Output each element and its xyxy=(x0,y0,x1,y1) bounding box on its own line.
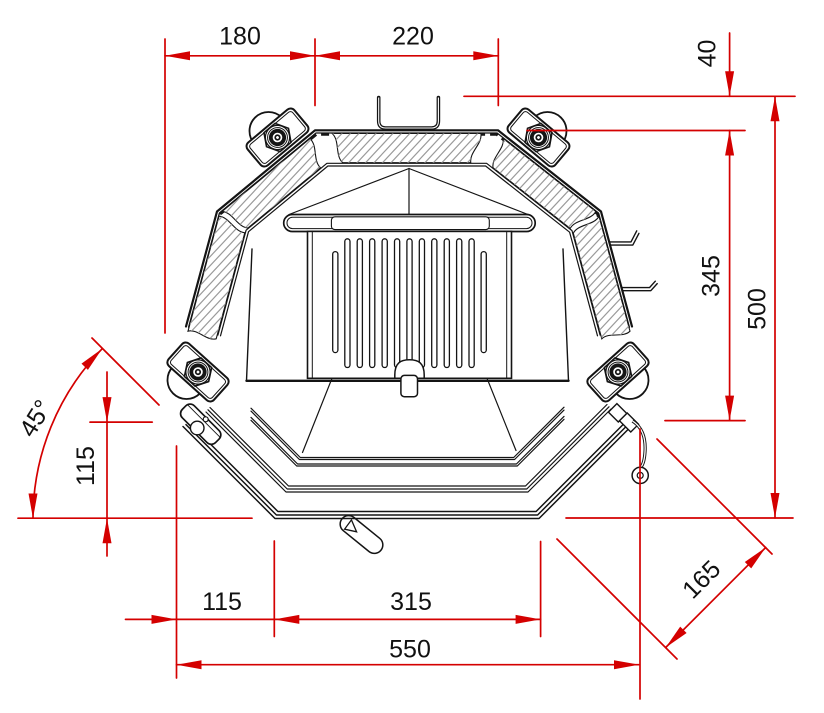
svg-text:165: 165 xyxy=(677,555,726,604)
svg-text:220: 220 xyxy=(392,23,434,51)
svg-text:180: 180 xyxy=(219,23,261,51)
svg-text:315: 315 xyxy=(390,588,432,616)
svg-text:550: 550 xyxy=(389,636,431,664)
svg-text:115: 115 xyxy=(72,446,100,486)
svg-text:40: 40 xyxy=(694,40,722,68)
svg-text:115: 115 xyxy=(202,588,242,616)
svg-text:45°: 45° xyxy=(14,395,58,442)
svg-text:500: 500 xyxy=(744,288,772,330)
svg-text:345: 345 xyxy=(698,255,726,297)
